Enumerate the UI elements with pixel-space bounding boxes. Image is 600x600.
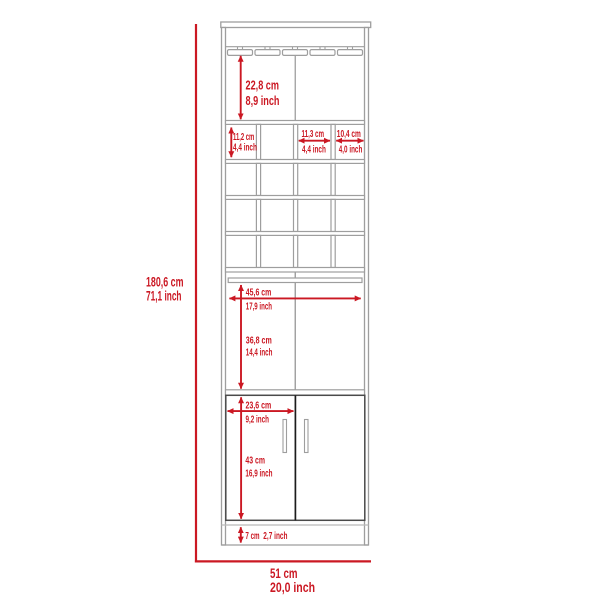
svg-text:11,2 cm: 11,2 cm (233, 132, 254, 143)
svg-text:4,4 inch: 4,4 inch (302, 145, 326, 156)
svg-text:43 cm: 43 cm (245, 455, 265, 466)
svg-text:14,4 inch: 14,4 inch (246, 348, 273, 359)
svg-text:2,7 inch: 2,7 inch (263, 531, 287, 542)
svg-text:10,4 cm: 10,4 cm (337, 129, 361, 140)
svg-text:16,9 inch: 16,9 inch (245, 468, 272, 479)
svg-text:17,9 inch: 17,9 inch (246, 301, 272, 312)
svg-text:36,8 cm: 36,8 cm (246, 336, 272, 347)
svg-text:4,0 inch: 4,0 inch (339, 145, 363, 156)
svg-text:45,6 cm: 45,6 cm (246, 287, 272, 298)
svg-text:22,8 cm: 22,8 cm (246, 78, 280, 93)
svg-text:7 cm: 7 cm (245, 531, 259, 542)
svg-text:9,2 inch: 9,2 inch (246, 414, 270, 425)
svg-text:20,0 inch: 20,0 inch (270, 580, 315, 596)
svg-text:8,9 inch: 8,9 inch (246, 93, 280, 108)
svg-text:71,1 inch: 71,1 inch (146, 289, 182, 305)
svg-text:23,6 cm: 23,6 cm (246, 400, 272, 411)
svg-text:11,3 cm: 11,3 cm (302, 129, 325, 140)
svg-text:4,4 inch: 4,4 inch (233, 143, 257, 154)
